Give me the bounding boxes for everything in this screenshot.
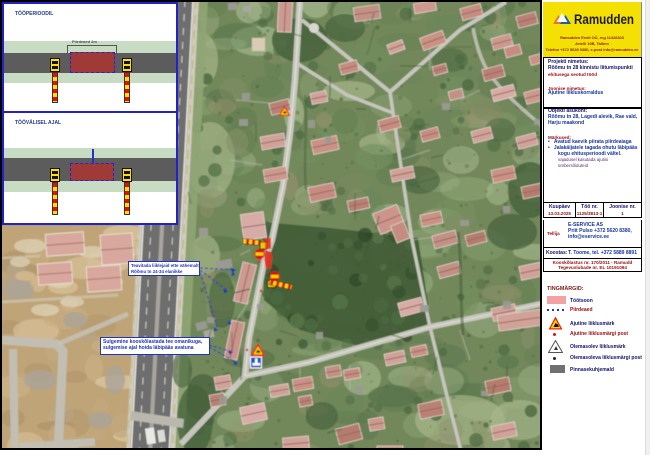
- svg-text:Ramudden: Ramudden: [574, 12, 634, 27]
